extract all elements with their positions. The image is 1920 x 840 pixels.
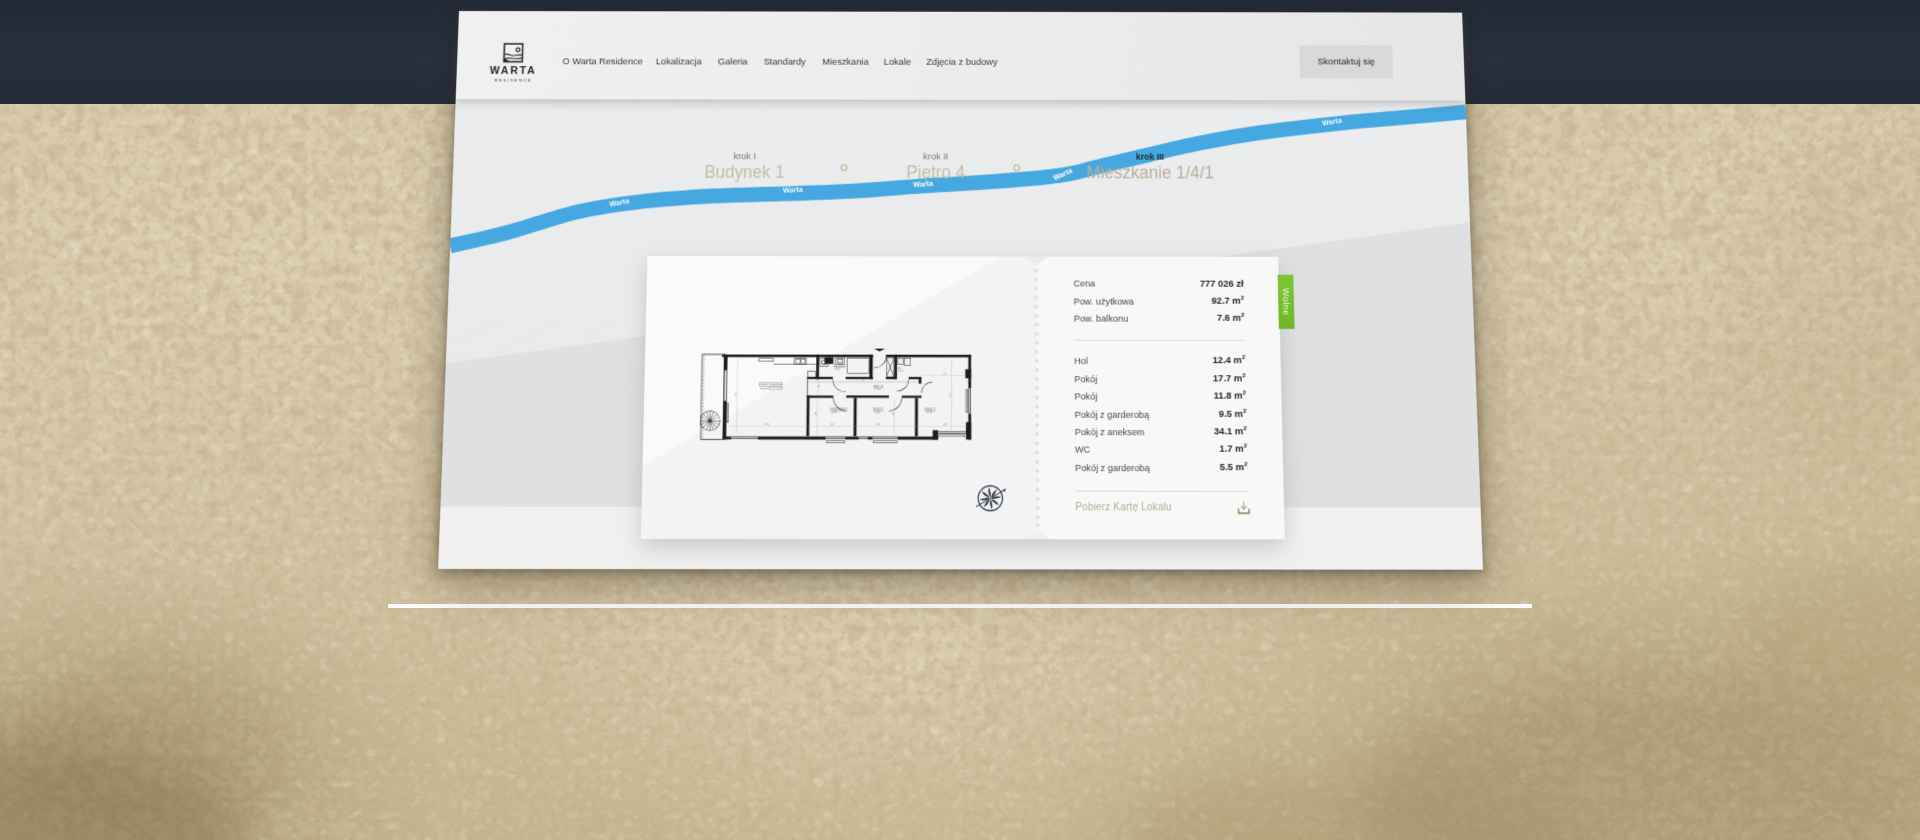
svg-text:203: 203 [830, 424, 835, 426]
svg-text:448: 448 [877, 424, 882, 426]
svg-text:9.5 m²: 9.5 m² [832, 411, 838, 414]
svg-text:HOL: HOL [875, 386, 879, 388]
svg-text:POKÓJ Z ANEKSEM: POKÓJ Z ANEKSEM [761, 383, 782, 386]
svg-text:52: 52 [819, 384, 821, 387]
svg-text:11.8 m²: 11.8 m² [874, 411, 881, 414]
svg-text:34.1 m²: 34.1 m² [761, 387, 769, 390]
svg-text:12.4 m²: 12.4 m² [875, 388, 882, 391]
svg-text:250: 250 [944, 424, 949, 426]
svg-text:WC: WC [898, 368, 902, 370]
svg-text:17.7 m²: 17.7 m² [926, 411, 933, 414]
svg-text:Warta: Warta [783, 185, 804, 195]
svg-text:548: 548 [765, 424, 770, 426]
svg-text:RESIDENCE: RESIDENCE [495, 78, 533, 83]
svg-text:4.6 m²: 4.6 m² [835, 368, 841, 371]
